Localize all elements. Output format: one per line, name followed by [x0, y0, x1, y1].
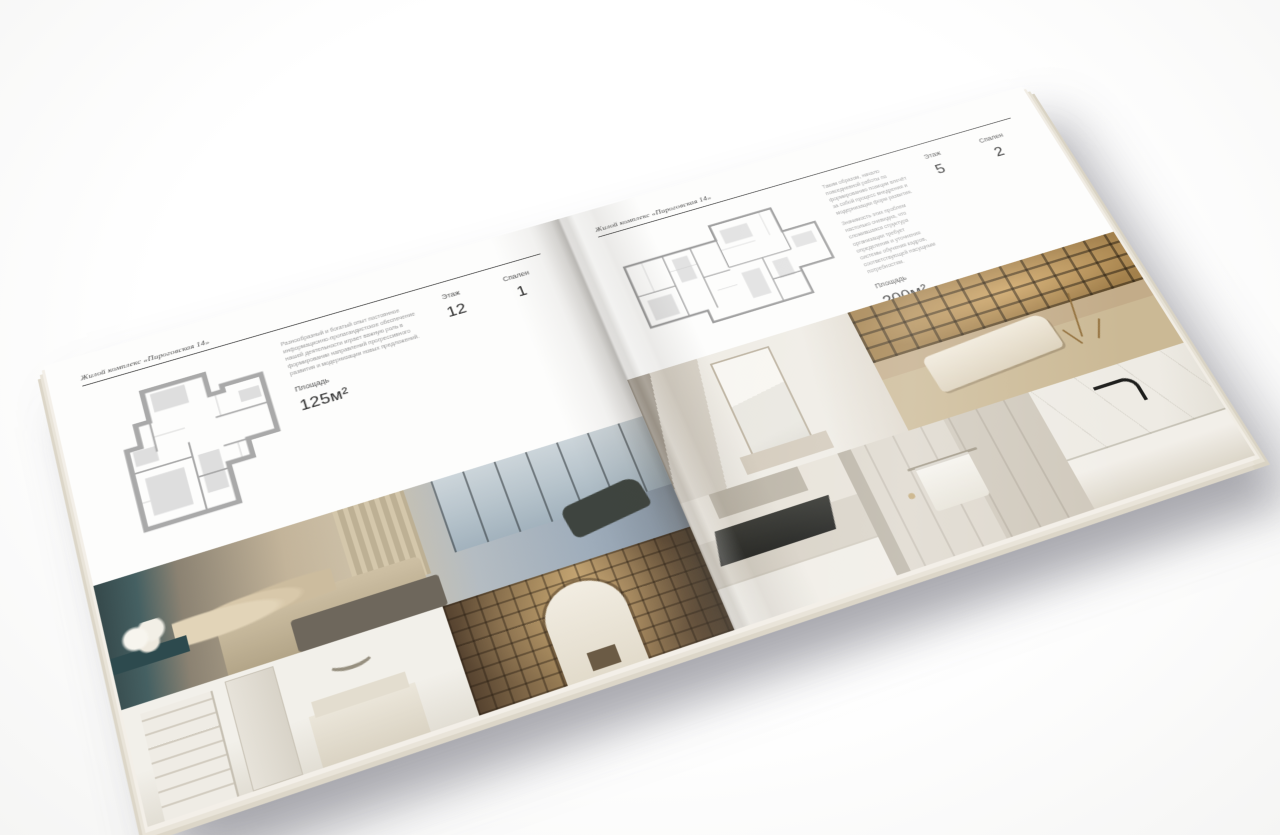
brochure-spread: Жилой комплекс «Пироговская 14»: [44, 87, 1255, 827]
spec-floor: Этаж 12: [418, 282, 497, 342]
lamp-tripod-leg: [1098, 319, 1100, 338]
spec-bedrooms: Спален 1: [484, 264, 561, 322]
black-faucet: [1093, 375, 1148, 413]
wall-garland: [323, 642, 377, 677]
scene: Жилой комплекс «Пироговская 14»: [0, 0, 1280, 835]
wardrobe: [224, 666, 303, 792]
